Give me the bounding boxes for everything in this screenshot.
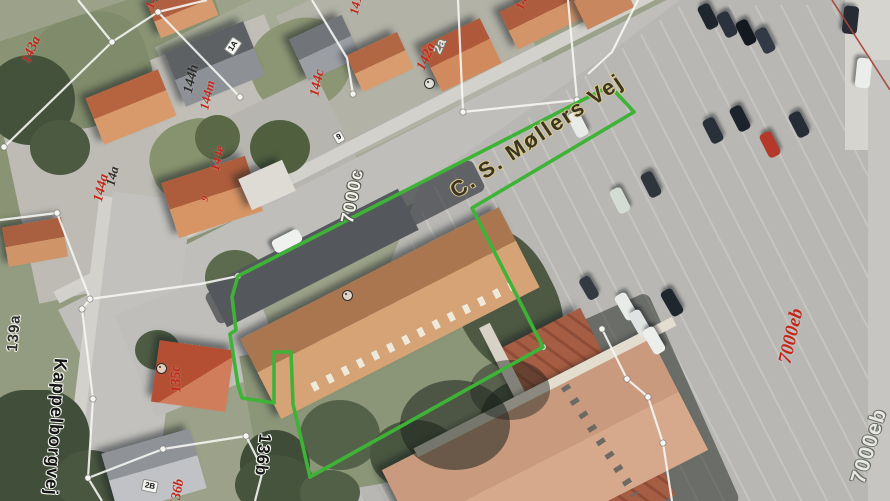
street-name-label: 139a [5,314,23,353]
parcel-number-label: 144h [182,63,202,94]
house-number-tag: 9 [332,129,347,144]
parcel-number-label: 142a [415,41,439,72]
survey-mark-icon [156,363,167,374]
aerial-map-viewport[interactable]: C. S. Møllers VejKappelborgvej136b139a70… [0,0,890,501]
survey-mark-icon [424,78,435,89]
parcel-number-label: 144c [308,68,327,98]
parcel-number-label: 144e [208,144,226,172]
street-name-label: 7000c [338,167,366,224]
parcel-number-label: 7000eb [775,307,806,366]
parcel-number-label: 136b [169,478,188,501]
street-name-label: 7000eb [848,406,890,486]
parcel-number-label: 14a [103,165,120,187]
house-number-tag: 2B [141,479,159,494]
parcel-number-label: 141c [347,0,365,16]
parcel-number-label: 9 [200,195,211,203]
street-name-label: C. S. Møllers Vej [446,70,627,202]
parcel-number-label: 143a [20,34,44,65]
parcel-number-label: 135c [170,365,185,393]
parcel-number-label: 14 [513,0,530,11]
parcel-number-label: 14 [143,0,160,10]
survey-mark-icon [342,290,353,301]
street-name-label: 136b [252,433,273,477]
map-labels-layer: C. S. Møllers VejKappelborgvej136b139a70… [0,0,890,501]
parcel-number-label: 144m [197,79,216,111]
street-name-label: Kappelborgvej [42,358,70,497]
house-number-tag: 1A [224,36,243,56]
